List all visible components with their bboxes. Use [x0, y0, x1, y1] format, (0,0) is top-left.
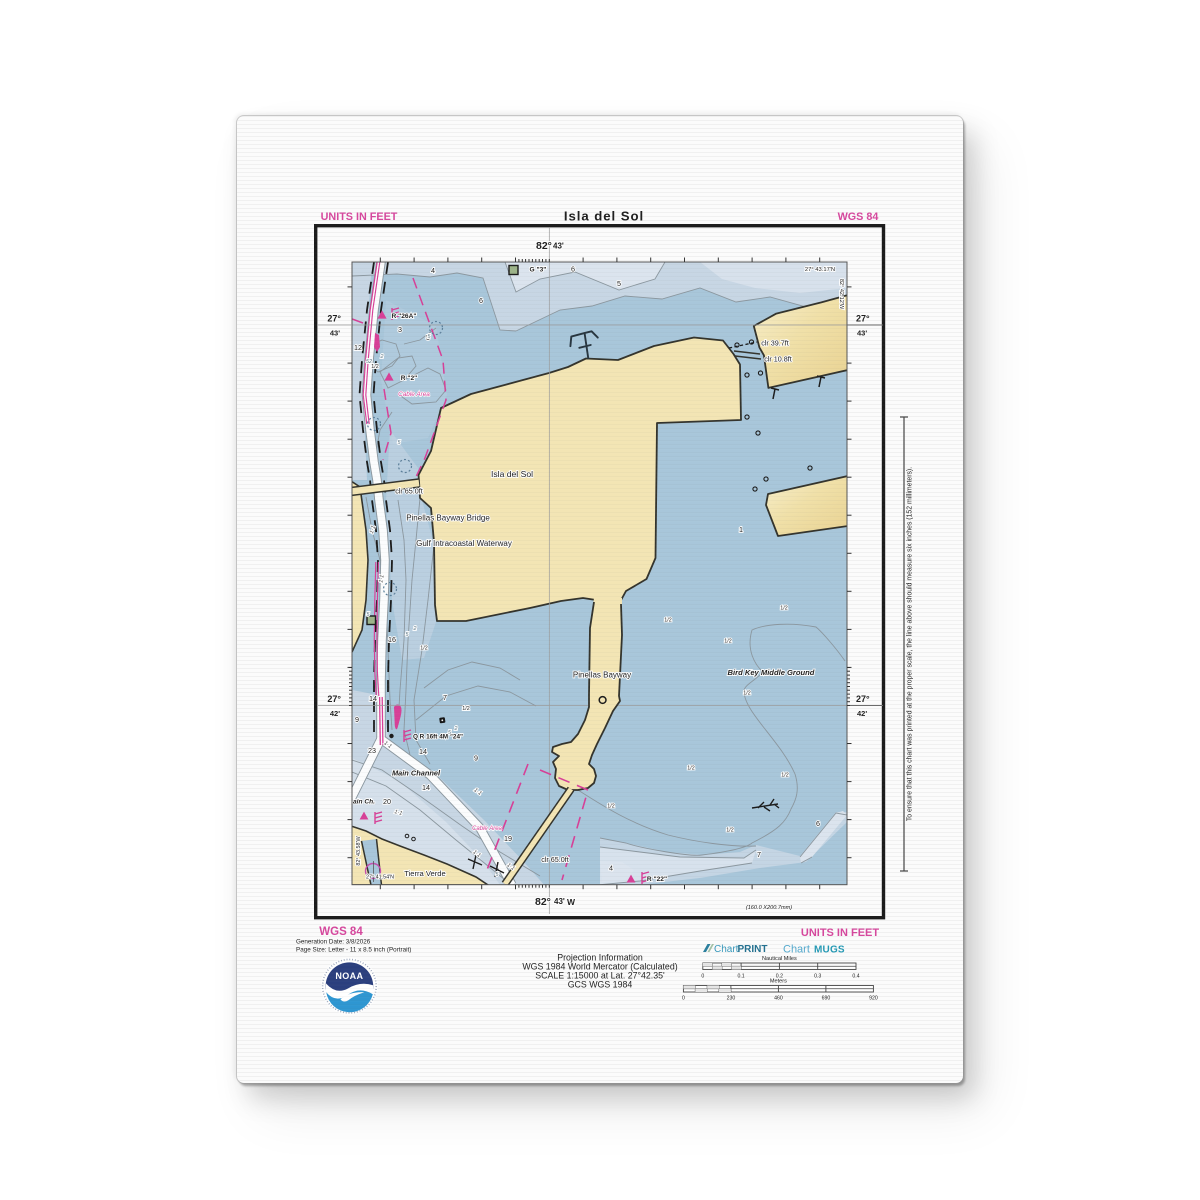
svg-text:0: 0	[682, 996, 685, 1002]
svg-text:27°: 27°	[856, 314, 870, 324]
svg-text:6: 6	[816, 819, 820, 828]
svg-text:82°: 82°	[536, 240, 552, 252]
svg-text:1: 1	[739, 525, 743, 534]
svg-text:Isla del Sol: Isla del Sol	[491, 469, 533, 479]
svg-text:27°: 27°	[856, 694, 870, 704]
svg-text:0.1: 0.1	[737, 974, 744, 980]
svg-text:Gulf Intracoastal Waterway: Gulf Intracoastal Waterway	[416, 539, 512, 548]
svg-text:1/2: 1/2	[726, 828, 734, 834]
svg-text:43': 43'	[857, 329, 867, 338]
svg-text:Chart: Chart	[714, 944, 739, 955]
svg-text:0: 0	[701, 974, 704, 980]
svg-text:43': 43'	[554, 897, 565, 906]
svg-text:Isla del Sol: Isla del Sol	[564, 209, 644, 224]
svg-text:14: 14	[419, 747, 427, 756]
svg-text:42': 42'	[330, 709, 340, 718]
svg-text:1/2: 1/2	[743, 691, 751, 697]
svg-text:clr 65.0ft: clr 65.0ft	[541, 855, 569, 864]
svg-text:23: 23	[368, 746, 376, 755]
svg-text:920: 920	[869, 996, 878, 1002]
svg-text:52: 52	[366, 359, 372, 365]
svg-text:1/2: 1/2	[462, 706, 470, 712]
svg-text:Cable Area: Cable Area	[472, 826, 502, 832]
svg-text:Bird Key Middle Ground: Bird Key Middle Ground	[728, 668, 815, 677]
svg-text:WGS 84: WGS 84	[319, 926, 363, 938]
svg-text:MUGS: MUGS	[814, 945, 845, 956]
svg-text:1/2: 1/2	[371, 364, 379, 370]
svg-text:4: 4	[609, 864, 613, 873]
svg-text:42': 42'	[857, 709, 867, 718]
svg-text:12: 12	[354, 343, 362, 352]
svg-text:7: 7	[443, 693, 447, 702]
svg-text:9: 9	[474, 754, 478, 763]
svg-text:Pinellas Bayway: Pinellas Bayway	[573, 671, 631, 680]
svg-text:Generation Date: 3/8/2026: Generation Date: 3/8/2026	[296, 939, 371, 946]
svg-text:ain Ch.: ain Ch.	[353, 799, 375, 806]
svg-text:2: 2	[380, 354, 384, 360]
svg-text:1/2: 1/2	[420, 646, 428, 652]
svg-text:230: 230	[727, 996, 736, 1002]
svg-text:1/2: 1/2	[607, 804, 615, 810]
svg-text:R "2": R "2"	[401, 375, 418, 382]
svg-text:PRINT: PRINT	[738, 944, 768, 955]
svg-text:UNITS IN FEET: UNITS IN FEET	[801, 927, 880, 939]
svg-text:7: 7	[757, 850, 761, 859]
svg-text:W: W	[567, 897, 576, 907]
svg-text:82° 42.12'W: 82° 42.12'W	[838, 279, 844, 310]
svg-text:Chart: Chart	[783, 944, 810, 956]
svg-text:27° 43.17'N: 27° 43.17'N	[805, 267, 835, 273]
svg-text:27°: 27°	[327, 314, 341, 324]
svg-text:690: 690	[822, 996, 831, 1002]
svg-text:2: 2	[454, 726, 458, 732]
svg-text:27°: 27°	[327, 694, 341, 704]
svg-text:5: 5	[617, 279, 621, 288]
svg-text:3: 3	[398, 325, 402, 334]
svg-text:43': 43'	[330, 329, 340, 338]
svg-text:(160.0 X200.7mm): (160.0 X200.7mm)	[746, 905, 792, 911]
svg-text:1/2: 1/2	[724, 639, 732, 645]
svg-text:NOAA: NOAA	[335, 971, 363, 981]
svg-text:4: 4	[431, 266, 435, 275]
svg-text:2: 2	[413, 626, 417, 632]
svg-text:Page Size: Letter - 11 x 8.5 i: Page Size: Letter - 11 x 8.5 inch (Portr…	[296, 947, 411, 954]
svg-text:14: 14	[422, 783, 430, 792]
svg-text:clr 65.0ft: clr 65.0ft	[395, 487, 423, 496]
svg-text:Main Channel: Main Channel	[392, 769, 441, 778]
svg-text:82° 43.58'W: 82° 43.58'W	[356, 835, 362, 865]
svg-text:1/2: 1/2	[781, 773, 789, 779]
svg-text:1/2: 1/2	[780, 606, 788, 612]
svg-text:WGS 84: WGS 84	[838, 211, 879, 223]
svg-text:Nautical Miles: Nautical Miles	[762, 956, 797, 962]
svg-text:20: 20	[383, 797, 391, 806]
svg-text:1/2: 1/2	[664, 618, 672, 624]
svg-text:clr 39.7ft: clr 39.7ft	[761, 339, 789, 348]
svg-text:19: 19	[504, 834, 512, 843]
svg-text:1/2: 1/2	[687, 766, 695, 772]
svg-text:6: 6	[571, 265, 575, 274]
svg-text:Pinellas Bayway Bridge: Pinellas Bayway Bridge	[406, 514, 490, 523]
svg-text:0.4: 0.4	[852, 974, 859, 980]
svg-text:43': 43'	[553, 242, 564, 251]
svg-text:G "3": G "3"	[530, 267, 547, 274]
svg-text:Tierra Verde: Tierra Verde	[404, 869, 446, 878]
svg-text:27° 41.54'N: 27° 41.54'N	[366, 875, 394, 881]
svg-text:UNITS IN FEET: UNITS IN FEET	[321, 211, 398, 223]
svg-text:0.3: 0.3	[814, 974, 821, 980]
svg-text:460: 460	[774, 996, 783, 1002]
svg-text:Q R 16ft 4M "24": Q R 16ft 4M "24"	[413, 734, 463, 741]
svg-text:6: 6	[479, 296, 483, 305]
svg-text:9: 9	[355, 715, 359, 724]
svg-text:82°: 82°	[535, 896, 551, 908]
svg-text:R "26A": R "26A"	[392, 313, 417, 320]
svg-text:GCS WGS 1984: GCS WGS 1984	[568, 980, 633, 990]
svg-text:14: 14	[369, 694, 377, 703]
svg-text:R "22": R "22"	[647, 876, 667, 883]
svg-text:Cable Area: Cable Area	[398, 391, 430, 398]
svg-text:clr 10.8ft: clr 10.8ft	[764, 355, 792, 364]
svg-text:16: 16	[388, 635, 396, 644]
svg-text:To ensure that this chart was: To ensure that this chart was printed at…	[907, 467, 914, 821]
svg-text:Meters: Meters	[770, 979, 787, 985]
